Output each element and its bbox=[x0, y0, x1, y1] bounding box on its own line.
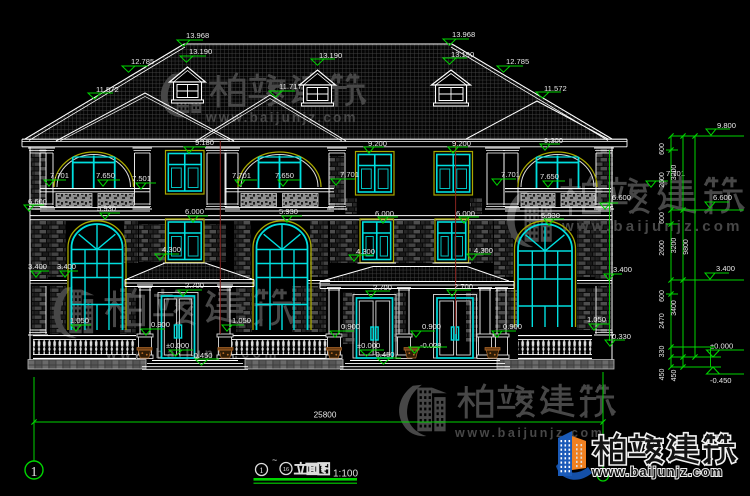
svg-text:7.701: 7.701 bbox=[232, 171, 251, 180]
svg-text:2470: 2470 bbox=[659, 313, 666, 329]
svg-text:3200: 3200 bbox=[671, 165, 678, 181]
svg-text:www.baijunjz.com: www.baijunjz.com bbox=[454, 426, 604, 440]
svg-text:0.900: 0.900 bbox=[422, 322, 441, 331]
svg-text:7.501: 7.501 bbox=[132, 174, 151, 183]
svg-text:3.400: 3.400 bbox=[716, 264, 735, 273]
svg-text:6.600: 6.600 bbox=[612, 193, 631, 202]
svg-text:13.968: 13.968 bbox=[452, 30, 475, 39]
svg-text:5.930: 5.930 bbox=[279, 207, 298, 216]
svg-text:±0.000: ±0.000 bbox=[710, 342, 733, 351]
svg-text:600: 600 bbox=[659, 212, 666, 224]
svg-text:7.650: 7.650 bbox=[275, 171, 294, 180]
svg-text:-0.028: -0.028 bbox=[420, 341, 442, 350]
svg-text:13.190: 13.190 bbox=[189, 47, 212, 56]
svg-text:2600: 2600 bbox=[659, 172, 666, 188]
svg-text:±0.000: ±0.000 bbox=[166, 341, 189, 350]
svg-text:1: 1 bbox=[31, 464, 38, 479]
svg-text:1.050: 1.050 bbox=[232, 316, 251, 325]
svg-text:7.701: 7.701 bbox=[501, 170, 520, 179]
svg-text:1.050: 1.050 bbox=[587, 315, 606, 324]
svg-text:4.300: 4.300 bbox=[162, 245, 181, 254]
svg-text:11.717: 11.717 bbox=[279, 82, 302, 91]
svg-text:1.050: 1.050 bbox=[70, 316, 89, 325]
svg-text:25800: 25800 bbox=[314, 411, 337, 420]
svg-text:3.400: 3.400 bbox=[28, 262, 47, 271]
svg-text:~: ~ bbox=[272, 455, 277, 465]
svg-text:3200: 3200 bbox=[671, 238, 678, 254]
svg-text:www.baijunjz.com: www.baijunjz.com bbox=[205, 110, 358, 125]
svg-text:-0.450: -0.450 bbox=[710, 376, 732, 385]
svg-text:2.700: 2.700 bbox=[185, 281, 204, 290]
svg-text:1: 1 bbox=[259, 465, 263, 475]
svg-text:1:100: 1:100 bbox=[333, 469, 358, 480]
svg-text:5.930: 5.930 bbox=[97, 204, 116, 213]
svg-text:7.701: 7.701 bbox=[50, 171, 69, 180]
svg-text:www.baijunjz.com: www.baijunjz.com bbox=[591, 464, 723, 479]
svg-text:0.900: 0.900 bbox=[151, 320, 170, 329]
svg-text:3.400: 3.400 bbox=[57, 262, 76, 271]
svg-text:450: 450 bbox=[671, 370, 678, 382]
svg-text:7.650: 7.650 bbox=[540, 172, 559, 181]
svg-text:450: 450 bbox=[659, 369, 666, 381]
svg-text:±0.000: ±0.000 bbox=[357, 341, 380, 350]
svg-text:9800: 9800 bbox=[683, 239, 690, 255]
svg-text:12.785: 12.785 bbox=[506, 57, 529, 66]
svg-text:3400: 3400 bbox=[671, 300, 678, 316]
svg-text:600: 600 bbox=[659, 143, 666, 155]
svg-text:16: 16 bbox=[283, 467, 289, 473]
svg-text:6.600: 6.600 bbox=[713, 193, 732, 202]
svg-text:9.180: 9.180 bbox=[195, 138, 214, 147]
svg-text:0.900: 0.900 bbox=[503, 322, 522, 331]
svg-text:330: 330 bbox=[659, 346, 666, 358]
svg-text:7.650: 7.650 bbox=[96, 171, 115, 180]
svg-text:3.400: 3.400 bbox=[613, 265, 632, 274]
svg-text:www.baijunjz.com: www.baijunjz.com bbox=[561, 218, 743, 235]
svg-text:6.000: 6.000 bbox=[185, 207, 204, 216]
svg-text:13.968: 13.968 bbox=[186, 31, 209, 40]
svg-text:600: 600 bbox=[659, 290, 666, 302]
svg-text:7.701: 7.701 bbox=[340, 170, 359, 179]
svg-text:2600: 2600 bbox=[659, 240, 666, 256]
svg-text:0.900: 0.900 bbox=[341, 322, 360, 331]
svg-text:12.785: 12.785 bbox=[131, 57, 154, 66]
